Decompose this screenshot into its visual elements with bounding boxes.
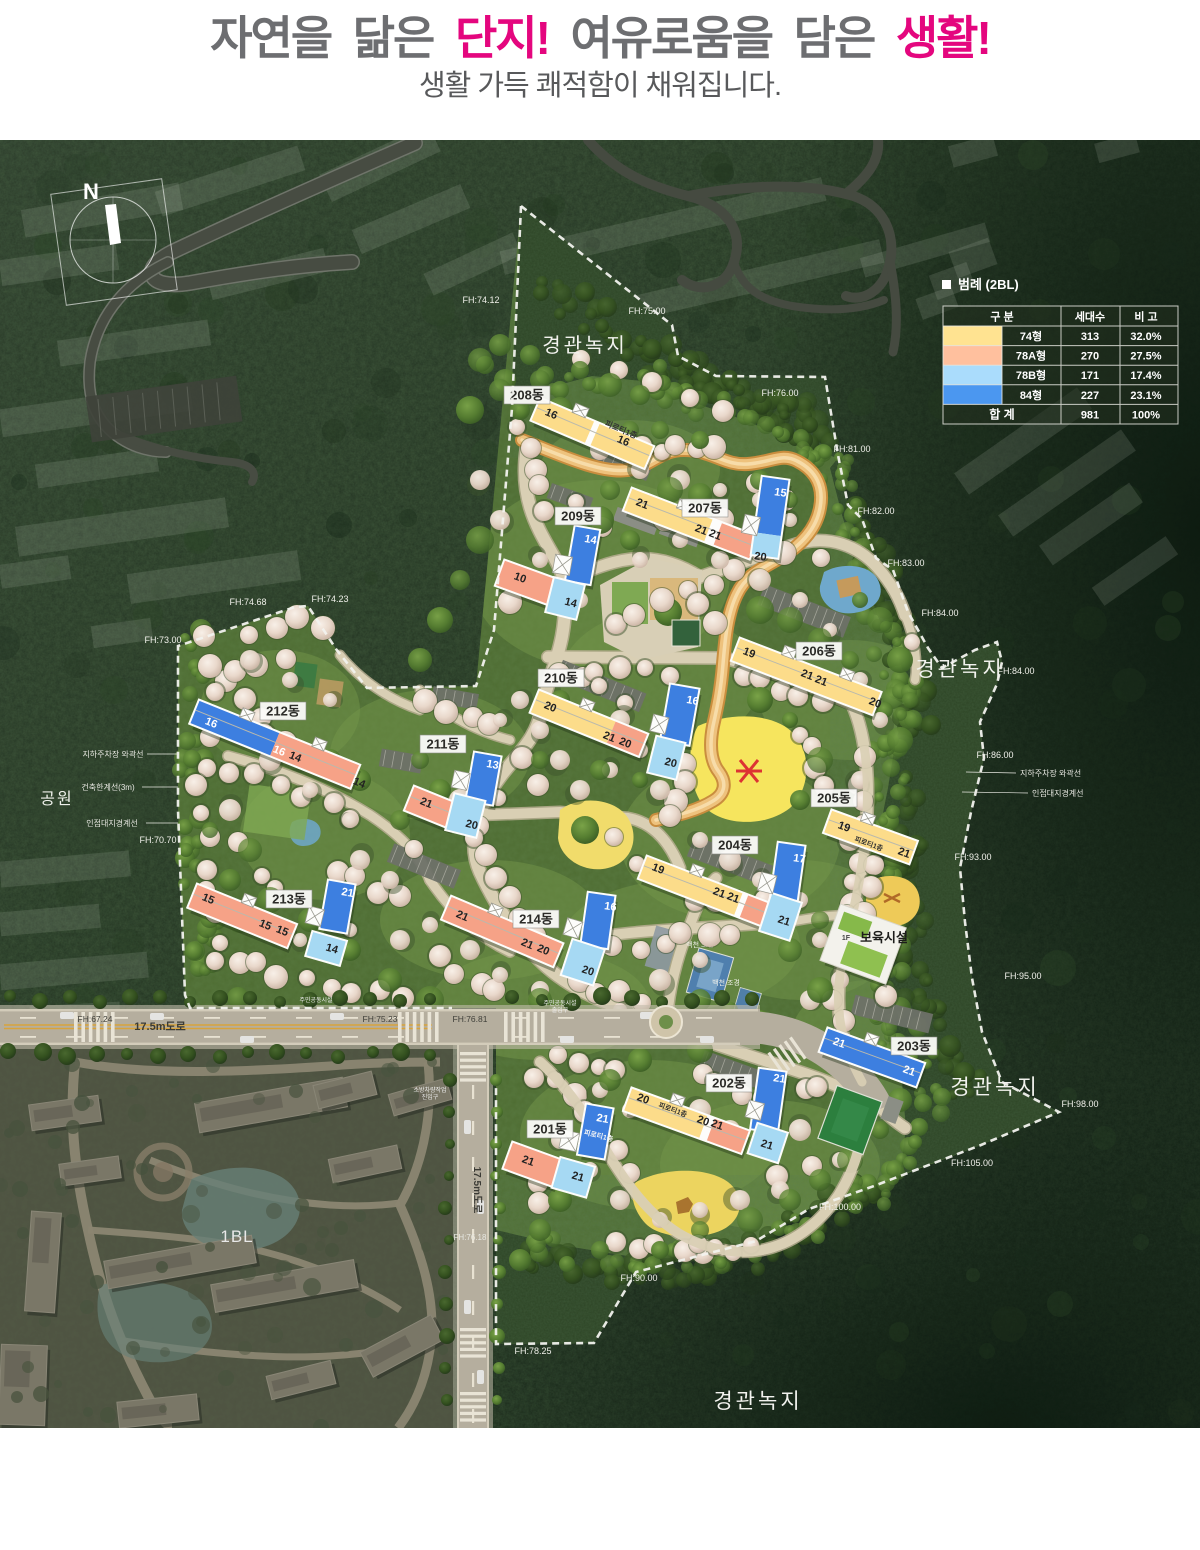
svg-text:FH:70.70: FH:70.70 [139,835,176,845]
svg-text:FH:76.00: FH:76.00 [761,388,798,398]
svg-text:32.0%: 32.0% [1130,331,1161,343]
svg-text:1F: 1F [842,935,851,942]
svg-text:FH:75.00: FH:75.00 [628,306,665,316]
svg-text:경관녹지: 경관녹지 [713,1390,802,1413]
svg-text:FH:90.00: FH:90.00 [620,1273,657,1283]
svg-text:구 분: 구 분 [990,311,1013,324]
svg-text:FH:95.00: FH:95.00 [1004,971,1041,981]
svg-text:74형: 74형 [1020,329,1042,343]
svg-text:FH:75.23: FH:75.23 [363,1014,398,1024]
svg-text:건축한계선(3m): 건축한계선(3m) [81,782,135,792]
svg-text:FH:86.00: FH:86.00 [976,750,1013,760]
svg-text:17.5m도로: 17.5m도로 [134,1020,185,1033]
svg-text:FH:105.00: FH:105.00 [951,1158,993,1168]
svg-text:207동: 207동 [688,501,722,516]
svg-text:FH:74.23: FH:74.23 [311,594,348,604]
svg-text:208동: 208동 [510,388,544,403]
svg-text:20: 20 [754,550,768,564]
svg-text:212동: 212동 [266,704,300,719]
svg-text:17: 17 [793,852,807,866]
svg-text:78B형: 78B형 [1016,368,1046,382]
svg-text:27.5%: 27.5% [1130,351,1161,363]
svg-text:78A형: 78A형 [1016,349,1046,363]
svg-text:FH:98.00: FH:98.00 [1061,1099,1098,1109]
svg-text:981: 981 [1081,409,1099,421]
svg-text:경관녹지: 경관녹지 [915,658,1004,681]
svg-text:FH:76.18: FH:76.18 [454,1233,487,1242]
svg-text:FH:93.00: FH:93.00 [954,852,991,862]
svg-text:FH:81.00: FH:81.00 [833,444,870,454]
svg-text:FH:73.00: FH:73.00 [144,635,181,645]
svg-text:201동: 201동 [533,1122,567,1137]
svg-text:인접대지경계선: 인접대지경계선 [1032,788,1084,798]
svg-text:FH:74.12: FH:74.12 [462,295,499,305]
svg-text:21: 21 [340,886,354,900]
svg-text:비 고: 비 고 [1134,310,1157,324]
svg-text:100%: 100% [1132,409,1160,421]
svg-text:213동: 213동 [272,892,306,907]
svg-text:FH:84.00: FH:84.00 [997,666,1034,676]
svg-text:인접대지경계선: 인접대지경계선 [86,818,138,828]
svg-text:FH:76.81: FH:76.81 [453,1014,488,1024]
svg-text:211동: 211동 [427,737,460,752]
svg-text:백천 조경: 백천 조경 [712,978,740,987]
svg-text:227: 227 [1081,390,1099,402]
svg-text:경관녹지: 경관녹지 [950,1076,1039,1099]
svg-text:세대수: 세대수 [1075,310,1105,324]
svg-text:FH:84.00: FH:84.00 [921,608,958,618]
svg-text:17.5m도로: 17.5m도로 [471,1167,483,1214]
svg-text:17.4%: 17.4% [1130,370,1161,382]
svg-text:209동: 209동 [561,509,595,524]
svg-text:214동: 214동 [519,912,553,927]
svg-text:1BL: 1BL [220,1227,253,1246]
svg-text:지하주차장 와곽선: 지하주차장 와곽선 [1020,768,1081,778]
svg-text:13: 13 [485,758,499,772]
svg-text:경관녹지: 경관녹지 [542,334,628,357]
svg-text:보육시설: 보육시설 [860,930,908,945]
svg-text:84형: 84형 [1020,388,1042,402]
svg-text:203동: 203동 [897,1039,931,1054]
svg-text:206동: 206동 [802,644,836,659]
svg-text:16: 16 [685,694,699,708]
svg-text:23.1%: 23.1% [1130,390,1161,402]
svg-text:21: 21 [773,1072,787,1086]
svg-text:주민공동시설: 주민공동시설 [299,996,332,1004]
svg-text:FH:82.00: FH:82.00 [857,506,894,516]
svg-text:범례 (2BL): 범례 (2BL) [958,277,1019,292]
svg-text:FH:78.25: FH:78.25 [514,1346,551,1356]
svg-text:204동: 204동 [718,838,752,853]
svg-text:205동: 205동 [817,791,851,806]
svg-text:합 계: 합 계 [989,406,1014,421]
svg-text:15: 15 [774,486,788,500]
svg-text:FH:100.00: FH:100.00 [819,1202,861,1212]
svg-text:16: 16 [604,900,618,914]
svg-text:FH:67.24: FH:67.24 [78,1014,113,1024]
svg-text:FH:74.68: FH:74.68 [229,597,266,607]
svg-text:지하주차장 와곽선: 지하주차장 와곽선 [82,749,143,759]
svg-text:313: 313 [1081,331,1099,343]
svg-text:270: 270 [1081,351,1099,363]
svg-text:21: 21 [595,1112,609,1126]
svg-text:공원: 공원 [40,790,73,808]
svg-text:171: 171 [1081,370,1099,382]
svg-text:FH:83.00: FH:83.00 [887,558,924,568]
svg-text:210동: 210동 [544,671,578,686]
svg-text:202동: 202동 [712,1076,746,1091]
